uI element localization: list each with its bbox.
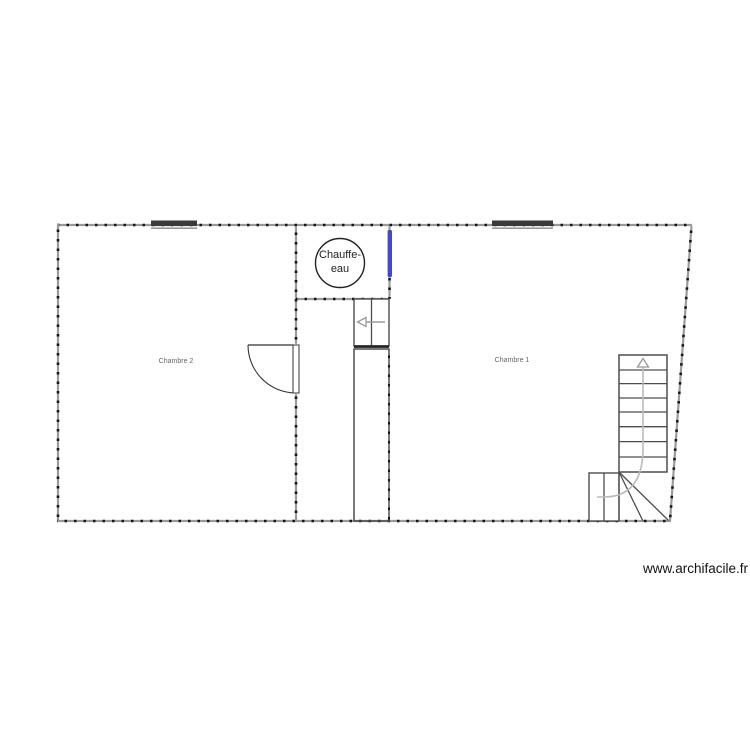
room-label-chambre-1[interactable]: Chambre 1 bbox=[466, 356, 558, 365]
door-swing-arc bbox=[248, 345, 296, 393]
window-chambre-1[interactable] bbox=[492, 221, 553, 229]
selected-wall-segment[interactable] bbox=[388, 230, 392, 277]
stair-winder-fan bbox=[619, 472, 669, 521]
water-heater-label-line1: Chauffe- bbox=[305, 249, 375, 263]
door-chambre-2[interactable] bbox=[248, 344, 300, 394]
water-heater-label[interactable]: Chauffe- eau bbox=[305, 249, 375, 276]
stair-hatch-box[interactable] bbox=[354, 299, 389, 347]
room-label-chambre-2[interactable]: Chambre 2 bbox=[130, 357, 222, 366]
window-chambre-2[interactable] bbox=[151, 221, 197, 229]
wall-exterior-right-slanted[interactable] bbox=[670, 226, 692, 521]
stairwell-shaft[interactable] bbox=[354, 349, 389, 521]
floor-plan-drawing bbox=[0, 0, 750, 750]
watermark: www.archifacile.fr bbox=[643, 560, 748, 577]
door-leaf bbox=[293, 345, 299, 393]
staircase[interactable] bbox=[589, 355, 669, 521]
floor-plan-canvas: Chambre 2 Chambre 1 Chauffe- eau www.arc… bbox=[0, 0, 750, 750]
water-heater-label-line2: eau bbox=[305, 263, 375, 277]
